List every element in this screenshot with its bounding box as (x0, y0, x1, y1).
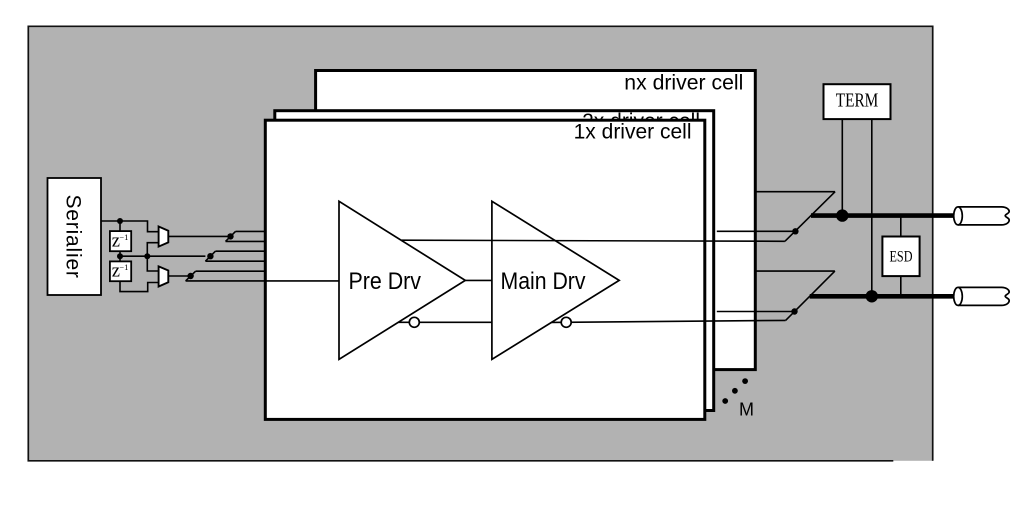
svg-text:Serialier: Serialier (62, 195, 85, 279)
svg-text:Pre Drv: Pre Drv (349, 268, 422, 295)
svg-text:−1: −1 (119, 262, 128, 272)
svg-text:M: M (739, 399, 754, 419)
svg-text:1x driver cell: 1x driver cell (574, 121, 692, 144)
svg-text:−1: −1 (119, 232, 128, 242)
svg-text:Main Drv: Main Drv (501, 268, 586, 295)
svg-text:TERM: TERM (836, 90, 879, 112)
svg-text:nx driver cell: nx driver cell (624, 71, 743, 94)
svg-text:ESD: ESD (890, 249, 913, 266)
